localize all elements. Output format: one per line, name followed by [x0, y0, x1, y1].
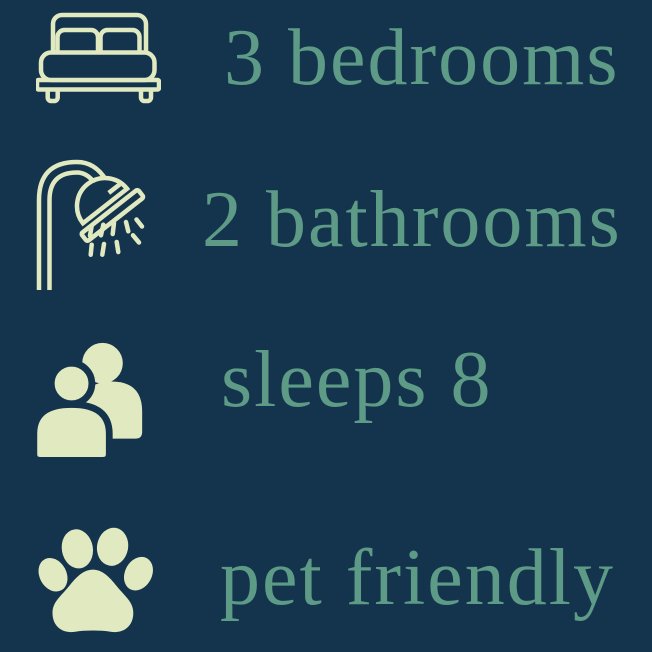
people-icon	[29, 334, 147, 462]
property-features-infographic: 3 bedrooms 2 bathrooms	[0, 0, 652, 652]
bed-icon	[36, 10, 161, 104]
bedrooms-label: 3 bedrooms	[224, 18, 620, 98]
sleeps-label: sleeps 8	[221, 340, 493, 420]
pet-friendly-label: pet friendly	[220, 538, 615, 618]
bathrooms-label: 2 bathrooms	[202, 180, 622, 260]
paw-icon	[38, 526, 154, 638]
shower-icon	[30, 156, 148, 292]
